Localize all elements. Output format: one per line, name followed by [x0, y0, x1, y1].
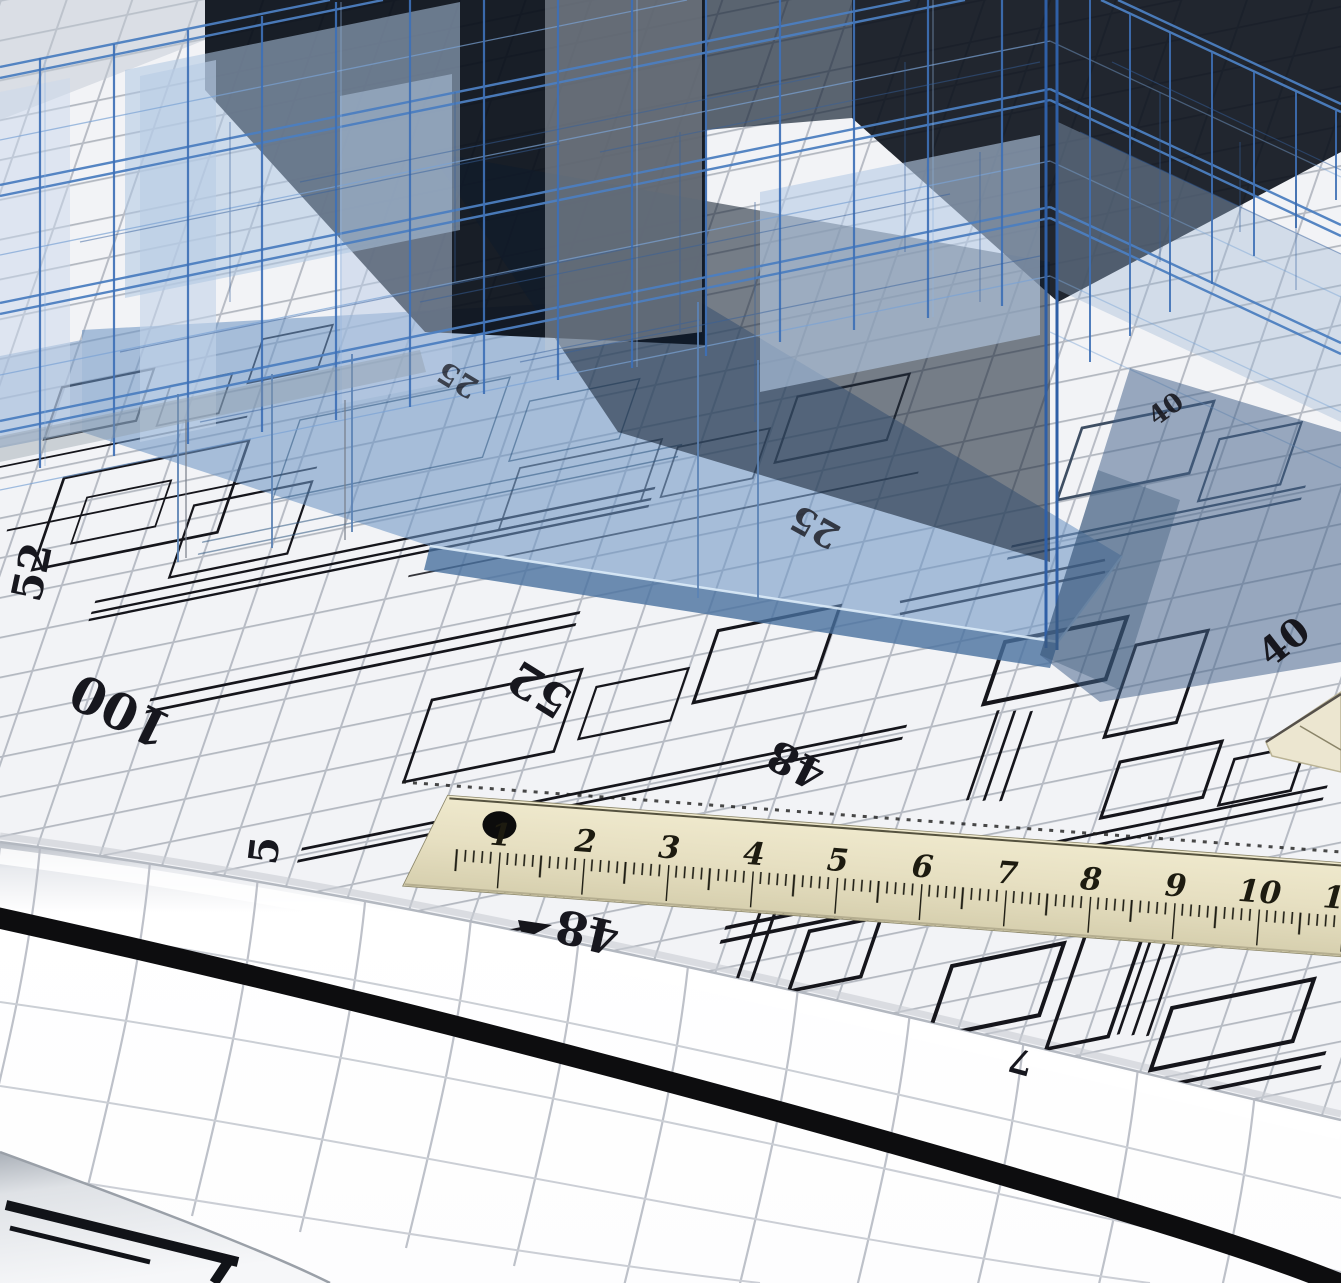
ruler-number: 7	[995, 855, 1020, 893]
ruler-number: 6	[910, 848, 934, 886]
blueprint-scene: 52 100 52 48 48 5 40 40 25 25 7 1 2 3 4 …	[0, 0, 1341, 1283]
ruler-number: 9	[1164, 867, 1188, 905]
ruler-number: 10	[1237, 873, 1283, 912]
ruler-number: 4	[742, 836, 766, 874]
ruler-number: 3	[657, 829, 681, 867]
void-top-mid	[705, 0, 852, 130]
ruler-number: 2	[572, 823, 597, 861]
ruler-number: 5	[826, 842, 850, 880]
ruler-number: 11	[1321, 879, 1341, 918]
ruler-number: 8	[1078, 861, 1103, 899]
ruler-number: 1	[489, 817, 513, 855]
plan-number: 5	[240, 834, 290, 867]
